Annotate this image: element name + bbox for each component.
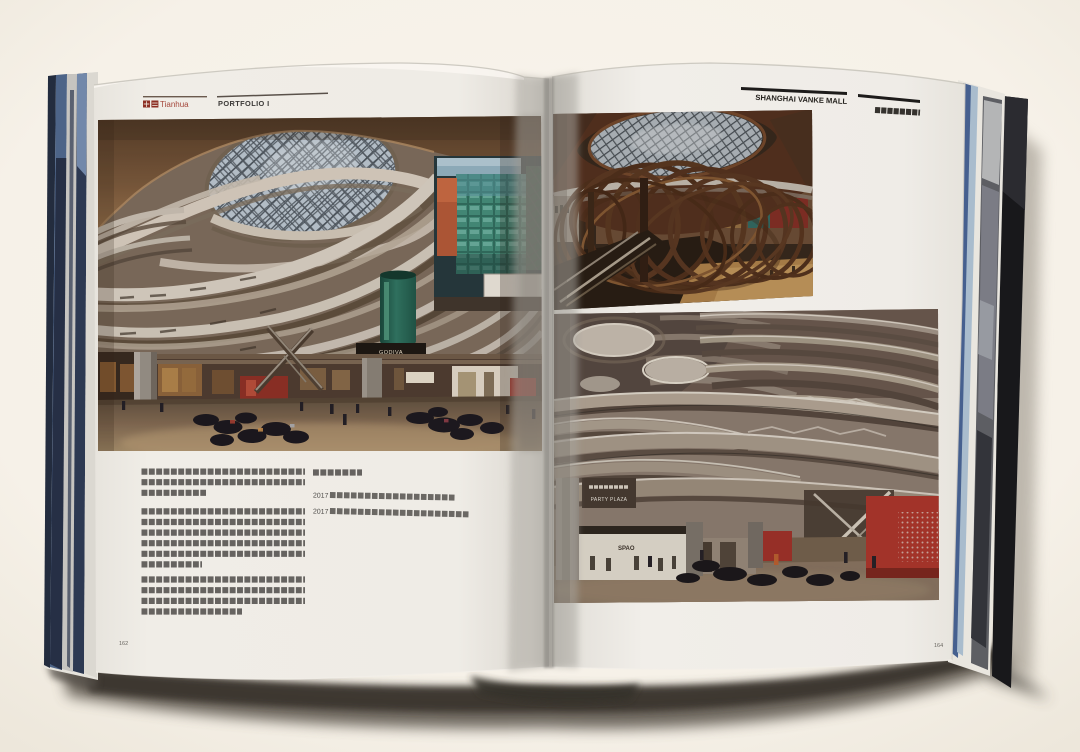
svg-text:PORTFOLIO I: PORTFOLIO I (218, 99, 270, 108)
svg-text:164: 164 (934, 643, 943, 649)
svg-text:2017: 2017 (313, 508, 329, 515)
svg-text:Tianhua: Tianhua (160, 100, 189, 109)
svg-text:2017: 2017 (313, 492, 329, 499)
svg-text:162: 162 (119, 641, 128, 647)
